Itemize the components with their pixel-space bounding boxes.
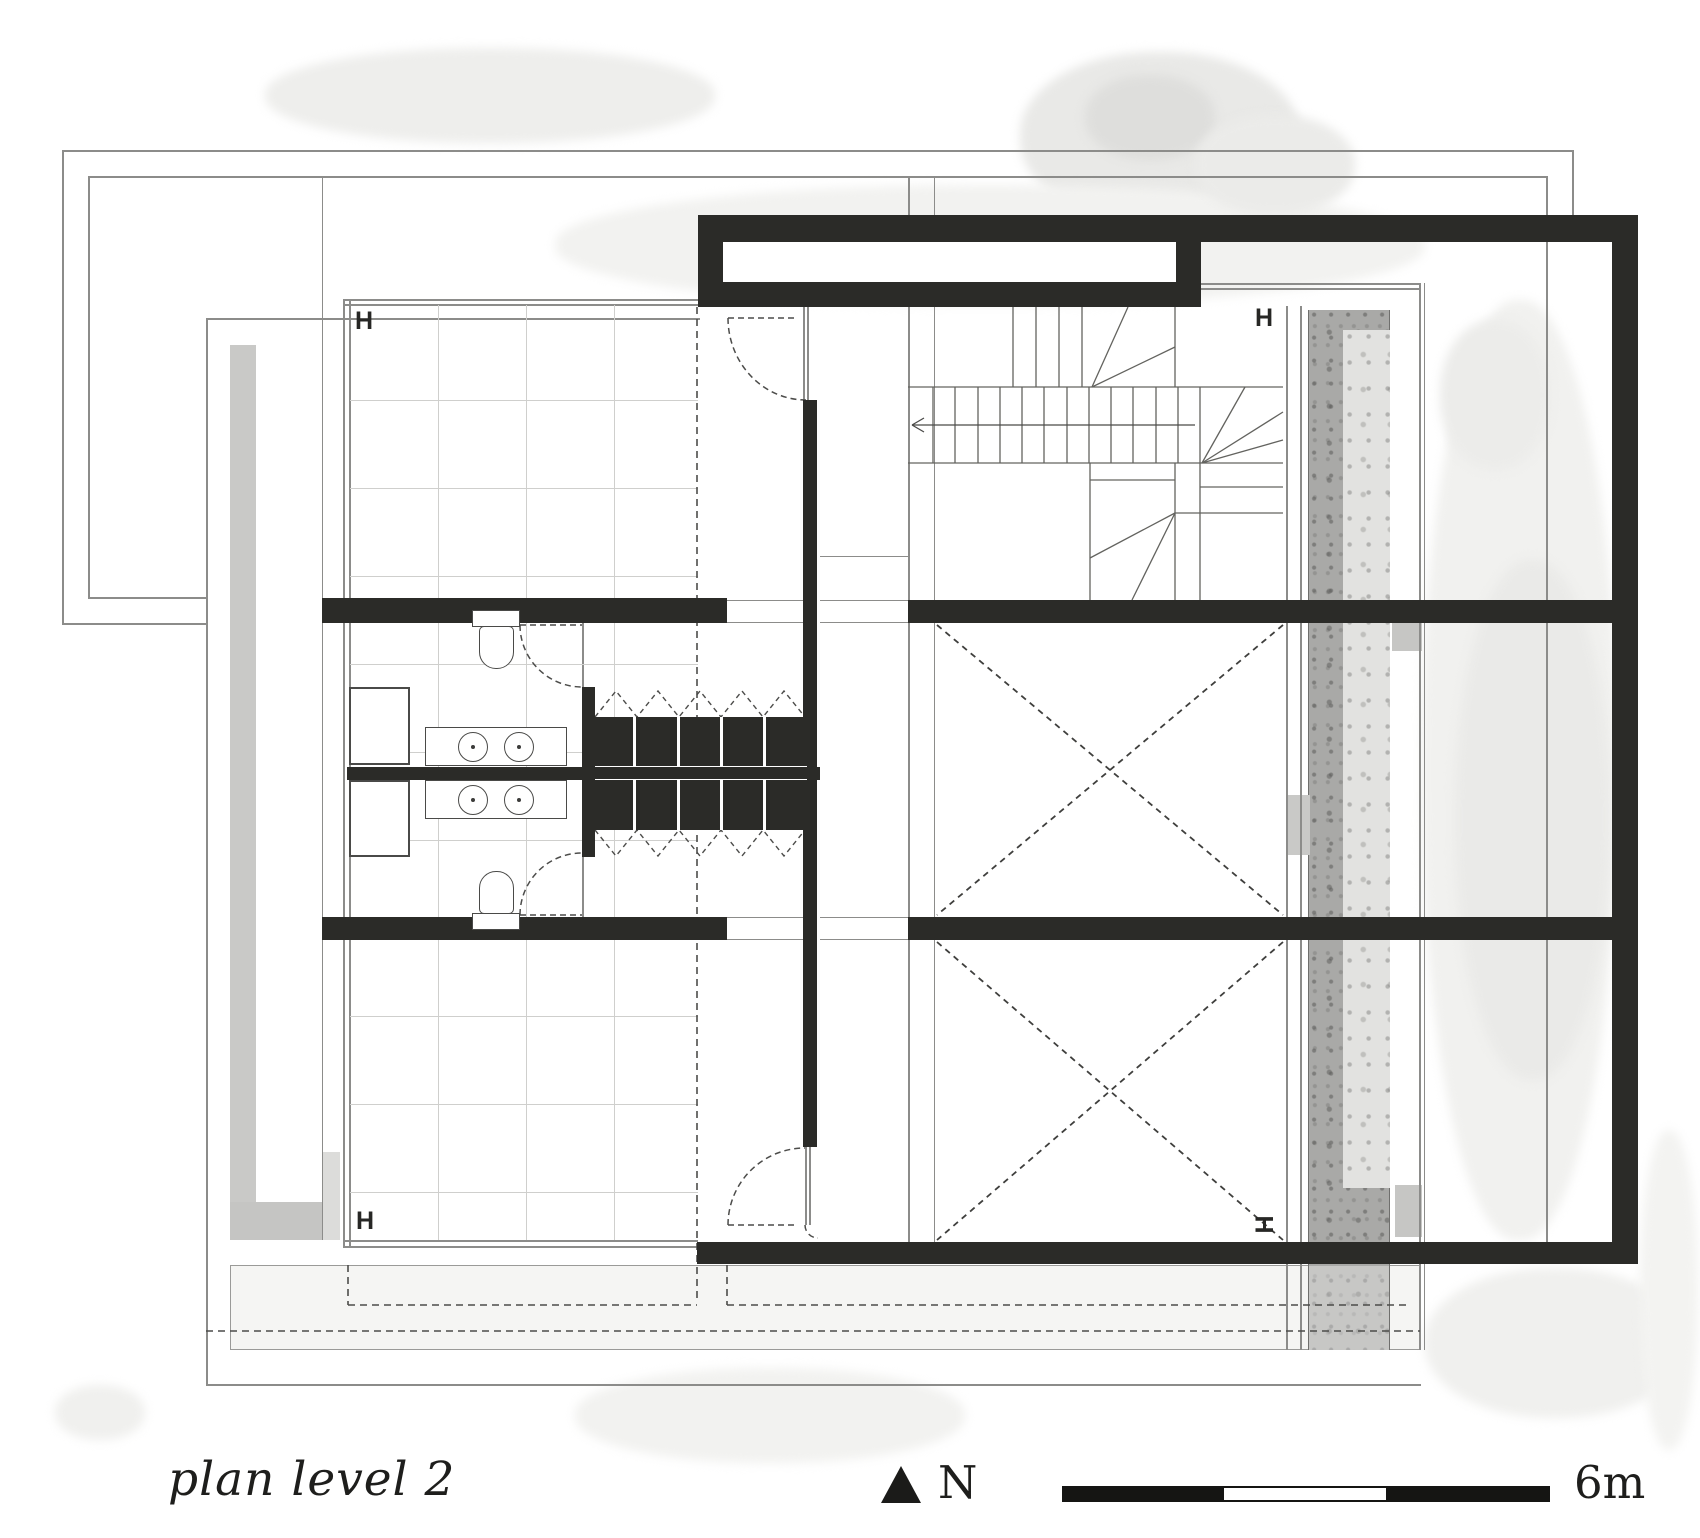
floor-plan-canvas: H H H H plan level 2 N 6m: [0, 0, 1700, 1538]
cabinet-box: [349, 780, 410, 857]
toilet-tank: [472, 913, 520, 930]
wall-bottom-bar: [697, 1242, 1638, 1264]
wall-top-ring-cavity: [723, 242, 1176, 282]
wall-right: [1612, 215, 1638, 1264]
sink-drain-dot: [517, 745, 521, 749]
closet-separator: [720, 780, 723, 830]
closet-separator: [720, 717, 723, 767]
closet-gap-line: [595, 779, 807, 780]
toilet-tank: [472, 610, 520, 627]
sink-drain-dot: [471, 745, 475, 749]
closet-separator: [763, 717, 766, 767]
column-marker: H: [355, 309, 373, 334]
stair: [908, 307, 1283, 600]
scale-label: 6m: [1574, 1456, 1645, 1509]
scale-bar-middle-segment: [1224, 1488, 1386, 1500]
wall-bath-lower: [322, 917, 727, 940]
column-marker: H: [1255, 306, 1273, 331]
north-label: N: [938, 1456, 977, 1509]
column-marker: H: [1251, 1215, 1276, 1233]
wall-mid-upper: [908, 600, 1612, 623]
north-arrow-icon: [881, 1466, 921, 1503]
closet-separator: [763, 780, 766, 830]
closet-separator: [633, 717, 636, 767]
cabinet-box: [349, 687, 410, 765]
wall-mid-lower: [908, 917, 1612, 940]
toilet-bowl: [479, 626, 514, 669]
wall-bath-upper: [322, 598, 727, 623]
closet-row-upper: [595, 717, 807, 767]
closet-separator: [677, 717, 680, 767]
wall-top-bar: [1201, 215, 1638, 242]
plan-title: plan level 2: [168, 1452, 455, 1507]
closet-separator: [633, 780, 636, 830]
toilet-bowl: [479, 871, 514, 914]
wall-bath-stub-lower: [582, 780, 595, 857]
wall-central-spine: [803, 400, 817, 1147]
closet-row-lower: [595, 780, 807, 830]
scale-bar: [1062, 1486, 1550, 1502]
closet-gap-line: [595, 766, 807, 767]
wall-bath-stub-upper: [582, 687, 595, 767]
sink-drain-dot: [517, 798, 521, 802]
vanity-counter: [425, 727, 567, 766]
closet-separator: [677, 780, 680, 830]
sink-drain-dot: [471, 798, 475, 802]
column-marker: H: [356, 1209, 374, 1234]
vanity-counter: [425, 780, 567, 819]
